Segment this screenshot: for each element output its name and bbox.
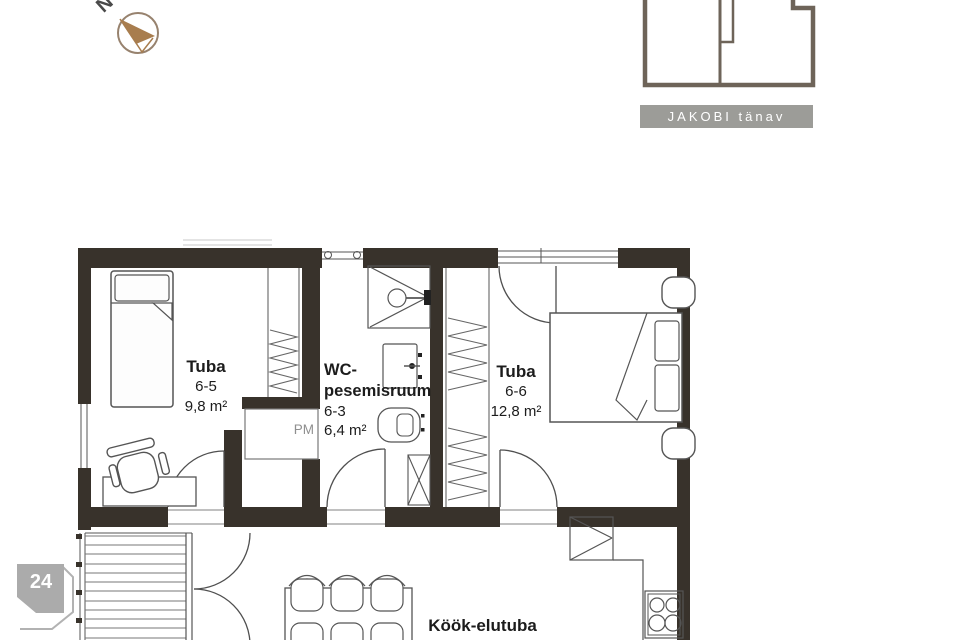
nightstand-top xyxy=(662,277,695,308)
room-area: 6,4 m² xyxy=(324,421,454,440)
room-name: Tuba xyxy=(470,361,562,382)
room-name: Tuba xyxy=(160,356,252,377)
staircase xyxy=(85,533,192,640)
floorplan-page: N JAKOBI tänav Tuba 6-5 9,8 m² WC- pesem… xyxy=(0,0,960,640)
room-area: 12,8 m² xyxy=(470,402,562,422)
wardrobe-left xyxy=(268,268,299,397)
room-label-kook-elutuba: Köök-elutuba xyxy=(420,616,545,636)
door-tuba66-bottom xyxy=(500,450,557,507)
room-label-wc-pesemisruum: WC- pesemisruum 6-3 6,4 m² xyxy=(324,360,454,440)
nightstand-bottom xyxy=(662,428,695,459)
door-bathroom xyxy=(327,449,385,507)
double-bed xyxy=(550,313,682,422)
duct-shaft xyxy=(408,455,430,505)
room-area: 9,8 m² xyxy=(160,397,252,417)
room-label-tuba-6-5: Tuba 6-5 9,8 m² xyxy=(160,356,252,417)
room-number: 6-3 xyxy=(324,402,454,421)
doors-stairwell xyxy=(194,533,250,640)
site-plan-outline xyxy=(645,0,813,85)
shower xyxy=(368,266,431,328)
street-name-bar: JAKOBI tänav xyxy=(640,105,813,128)
page-badge-number: 24 xyxy=(18,571,64,594)
room-label-tuba-6-6: Tuba 6-6 12,8 m² xyxy=(470,361,562,422)
room-number: 6-6 xyxy=(470,382,562,402)
roof-overhang-lines xyxy=(183,240,272,245)
room-name-line2: pesemisruum xyxy=(324,381,454,402)
dining-chairs xyxy=(289,576,405,640)
kitchen-cabinet xyxy=(570,517,643,640)
compass-icon xyxy=(118,13,158,53)
room-number: 6-5 xyxy=(160,377,252,397)
room-name-line1: WC- xyxy=(324,360,454,381)
floor-plan-drawing xyxy=(0,0,960,640)
washing-machine-label: PM xyxy=(268,422,314,437)
door-tuba66-balcony xyxy=(499,266,556,323)
